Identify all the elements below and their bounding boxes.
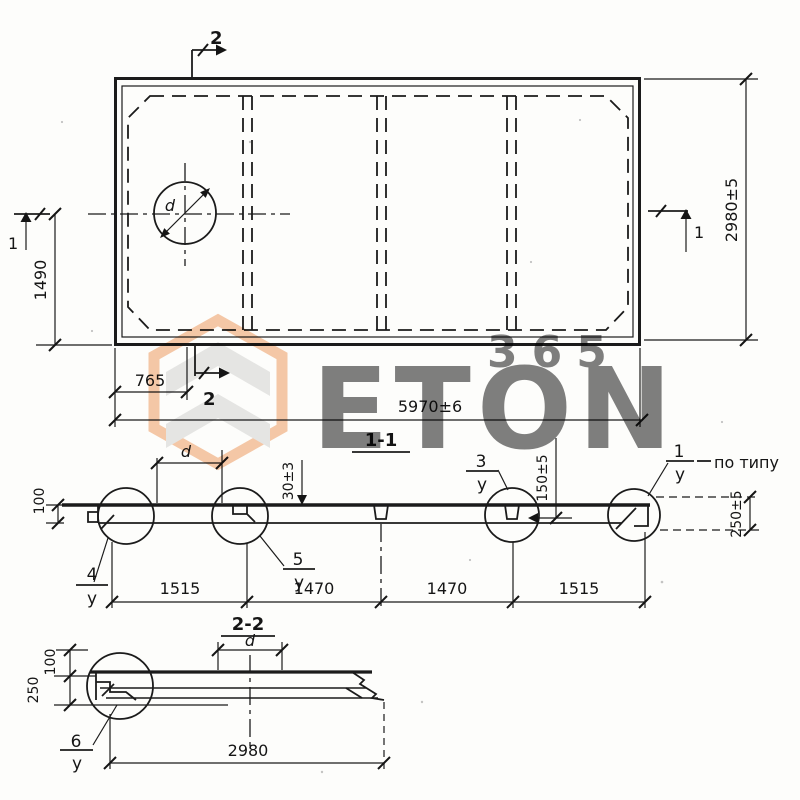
- section-marker-2-top-label: 2: [210, 28, 223, 49]
- segment-dim-1: 1515: [160, 579, 201, 598]
- section-2-2-dim-2980-label: 2980: [228, 741, 269, 760]
- section-marker-1-right-label: 1: [694, 223, 704, 242]
- segment-dim-3: 1470: [427, 579, 468, 598]
- section-1-1-detail-circles: [98, 488, 660, 544]
- section-1-1-dim-100: 100: [32, 488, 64, 529]
- section-1-1-dim-250-label: 250±5: [729, 490, 745, 537]
- section-2-2: 2-2 d: [26, 614, 390, 774]
- drawing-canvas: d 1 1 2: [0, 0, 800, 800]
- section-marker-1-left: 1: [8, 208, 50, 253]
- section-2-2-dim-2980: 2980: [104, 702, 390, 769]
- detail-label-4: 4 у: [76, 538, 108, 609]
- section-1-1-dim-30-label: 30±3: [281, 462, 297, 500]
- plan-dim-1490: 1490: [31, 208, 112, 351]
- section-2-2-slab: [90, 672, 384, 700]
- detail-4-den: у: [87, 589, 97, 609]
- section-1-1-bottom-dims: 1515 1470 1470 1515: [106, 524, 651, 608]
- detail-6-num: 6: [71, 732, 82, 752]
- plan-dim-1490-label: 1490: [31, 260, 50, 301]
- detail-3-den: у: [477, 475, 487, 495]
- plan-hole-diameter-label: d: [165, 196, 176, 215]
- segment-dim-2: 1470: [294, 579, 335, 598]
- plan-dashed-outline: [128, 96, 628, 330]
- section-marker-1-right: 1: [648, 205, 704, 252]
- watermark-logo-chevron-upper: [166, 342, 270, 396]
- section-2-2-dim-250-label: 250: [26, 677, 42, 704]
- detail-6-den: у: [72, 754, 82, 774]
- segment-dim-4: 1515: [559, 579, 600, 598]
- plan-opening: d: [88, 163, 290, 266]
- scanned-drawing-page: d 1 1 2: [0, 0, 800, 800]
- section-marker-2-top: 2: [192, 28, 227, 78]
- section-2-2-dim-d-label: d: [245, 631, 256, 650]
- detail-4-num: 4: [87, 565, 98, 585]
- section-1-1-dim-100-label: 100: [32, 488, 48, 515]
- section-1-1-dim-30: 30±3: [281, 460, 307, 505]
- plan-dim-2980-label: 2980±5: [722, 178, 741, 242]
- detail-1-note: по типу: [714, 453, 779, 472]
- watermark-number-text: 365: [487, 327, 621, 378]
- section-1-1-slab: [62, 505, 650, 529]
- section-2-2-dim-100-label: 100: [43, 649, 59, 676]
- section-1-1-dim-250: 250±5: [656, 490, 760, 537]
- detail-5-num: 5: [293, 550, 304, 570]
- section-marker-1-left-label: 1: [8, 234, 18, 253]
- plan-panel-dividers: [243, 96, 516, 330]
